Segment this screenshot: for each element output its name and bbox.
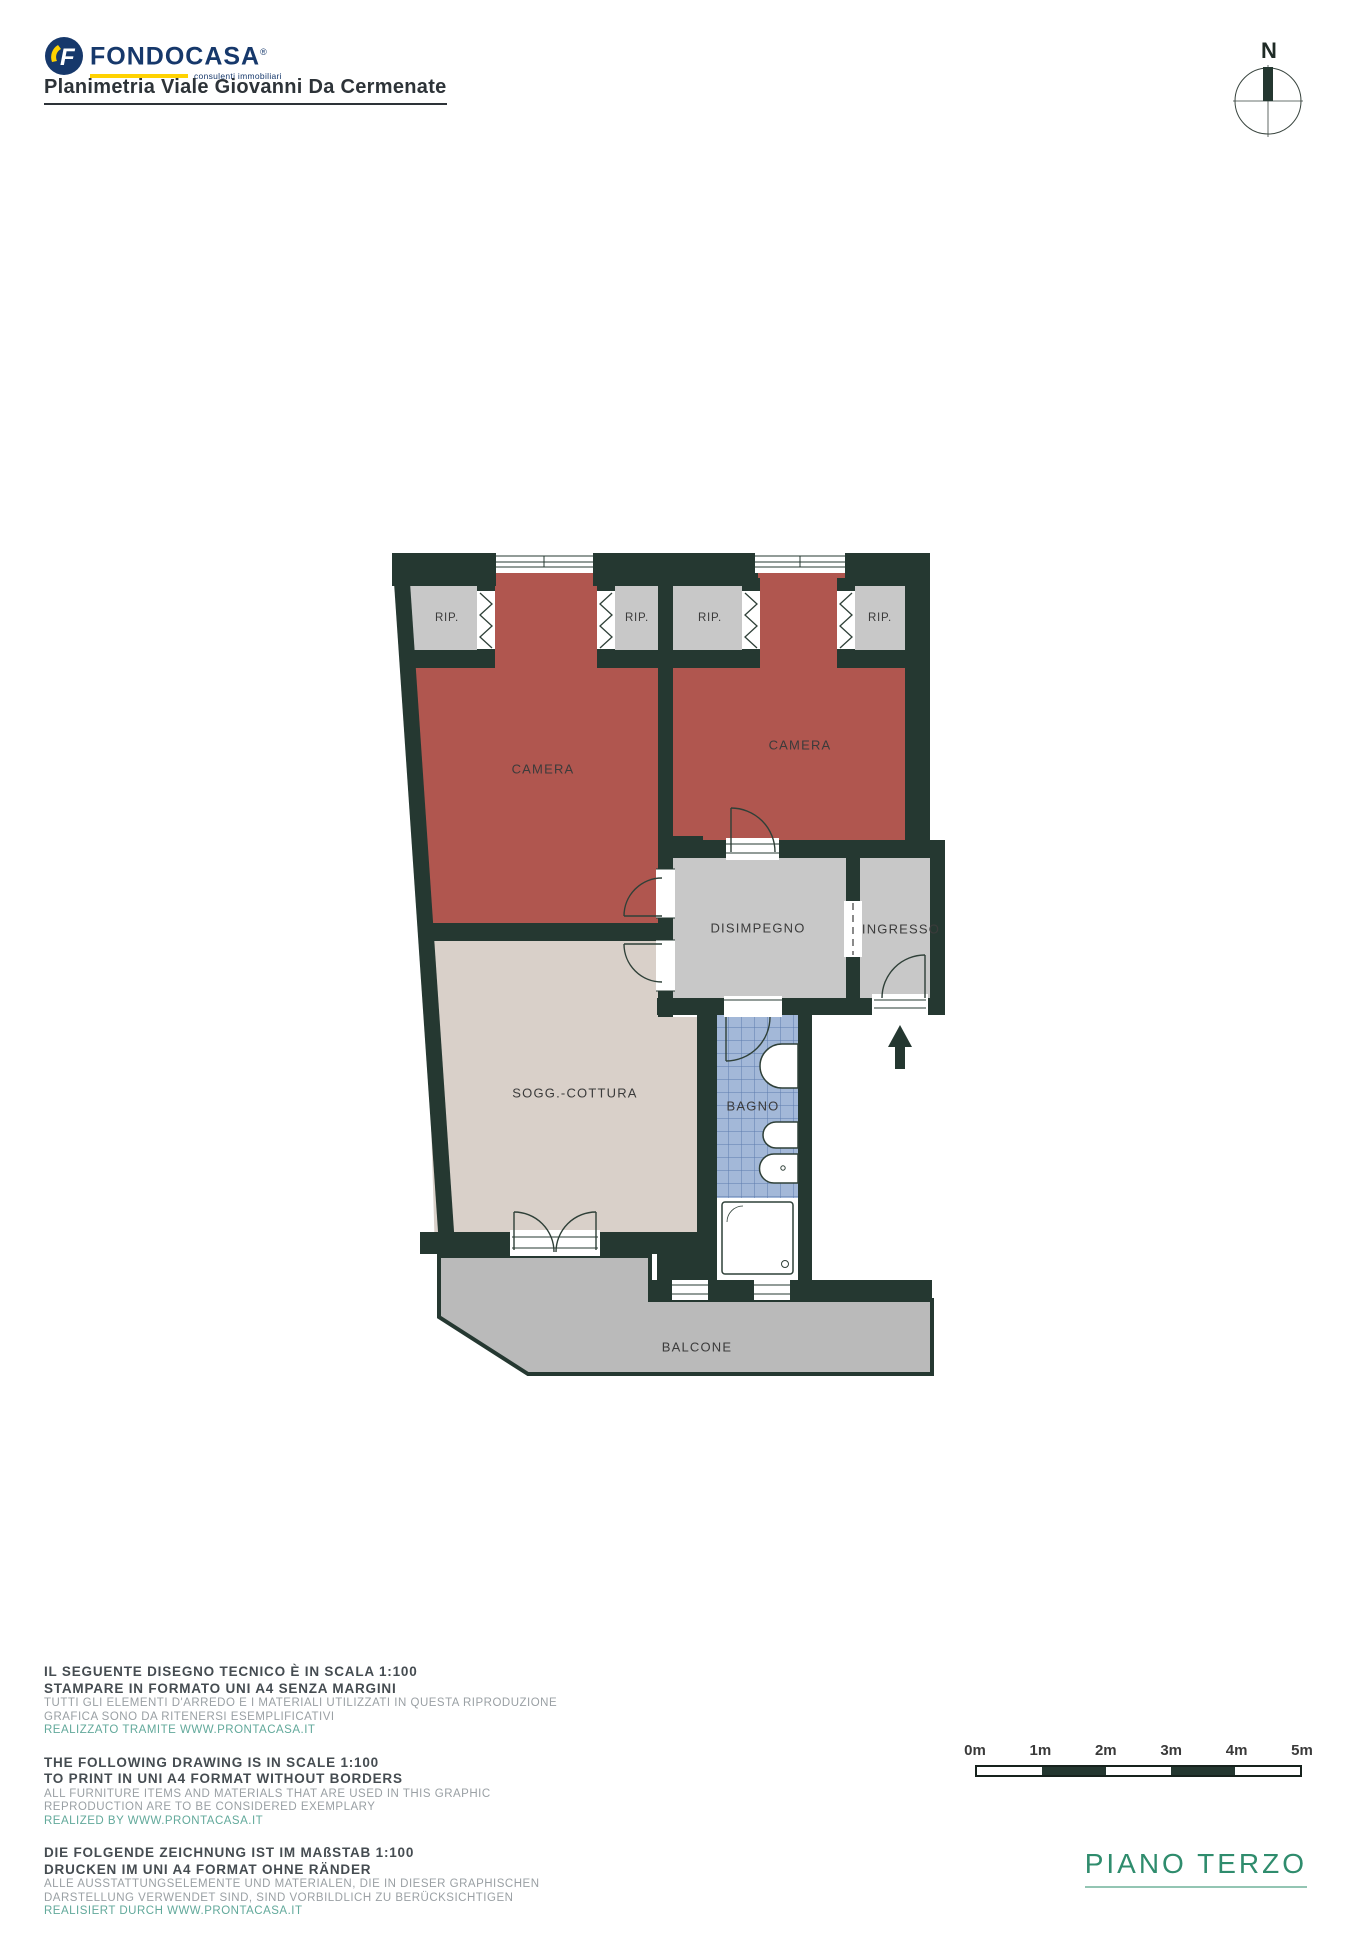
floor-label: PIANO TERZO (1085, 1848, 1307, 1888)
bagno-label: BAGNO (727, 1099, 780, 1114)
note-line: THE FOLLOWING DRAWING IS IN SCALE 1:100 (44, 1755, 684, 1772)
note-line: DRUCKEN IM UNI A4 FORMAT OHNE RÄNDER (44, 1862, 684, 1879)
scale-tick-label: 0m (964, 1742, 986, 1759)
scale-bar-segments (975, 1765, 1302, 1777)
note-line: REPRODUCTION ARE TO BE CONSIDERED EXEMPL… (44, 1801, 684, 1815)
ingresso-label: INGRESSO (862, 922, 940, 937)
scale-tick-label: 1m (1030, 1742, 1052, 1759)
note-link: REALIZED BY WWW.PRONTACASA.IT (44, 1815, 684, 1829)
rip3-label: RIP. (698, 612, 722, 624)
note-link: REALIZZATO TRAMITE WWW.PRONTACASA.IT (44, 1724, 684, 1738)
balcone-label: BALCONE (662, 1340, 733, 1355)
soggiorno-label: SOGG.-COTTURA (512, 1086, 637, 1101)
entrance-arrow-icon (888, 1025, 912, 1069)
toilet-icon (760, 1154, 799, 1183)
note-link: REALISIERT DURCH WWW.PRONTACASA.IT (44, 1905, 684, 1919)
notes-italian: IL SEGUENTE DISEGNO TECNICO È IN SCALA 1… (44, 1664, 684, 1738)
notes: IL SEGUENTE DISEGNO TECNICO È IN SCALA 1… (44, 1664, 684, 1936)
notes-german: DIE FOLGENDE ZEICHNUNG IST IM MAßSTAB 1:… (44, 1845, 684, 1919)
note-line: IL SEGUENTE DISEGNO TECNICO È IN SCALA 1… (44, 1664, 684, 1681)
rip1-label: RIP. (435, 612, 459, 624)
page: F FONDOCASA® consulenti immobiliari Plan… (0, 0, 1357, 1920)
note-line: ALLE AUSSTATTUNGSELEMENTE UND MATERIALEN… (44, 1878, 684, 1892)
scale-tick-label: 3m (1160, 1742, 1182, 1759)
rip4-label: RIP. (868, 612, 892, 624)
note-line: DIE FOLGENDE ZEICHNUNG IST IM MAßSTAB 1:… (44, 1845, 684, 1862)
scale-tick-label: 2m (1095, 1742, 1117, 1759)
scale-bar: 0m 1m 2m 3m 4m 5m (975, 1742, 1302, 1777)
note-line: STAMPARE IN FORMATO UNI A4 SENZA MARGINI (44, 1681, 684, 1698)
notes-english: THE FOLLOWING DRAWING IS IN SCALE 1:100 … (44, 1755, 684, 1829)
bidet-icon (763, 1122, 798, 1148)
camera2-label: CAMERA (769, 738, 832, 753)
rip2-label: RIP. (625, 612, 649, 624)
note-line: TO PRINT IN UNI A4 FORMAT WITHOUT BORDER… (44, 1771, 684, 1788)
disimpegno-label: DISIMPEGNO (710, 921, 805, 936)
note-line: GRAFICA SONO DA RITENERSI ESEMPLIFICATIV… (44, 1711, 684, 1725)
floorplan-drawing (0, 0, 1357, 1920)
note-line: ALL FURNITURE ITEMS AND MATERIALS THAT A… (44, 1788, 684, 1802)
note-line: TUTTI GLI ELEMENTI D'ARREDO E I MATERIAL… (44, 1697, 684, 1711)
scale-tick-label: 5m (1291, 1742, 1313, 1759)
scale-tick-label: 4m (1226, 1742, 1248, 1759)
note-line: DARSTELLUNG VERWENDET SIND, SIND VORBILD… (44, 1892, 684, 1906)
camera1-label: CAMERA (512, 762, 575, 777)
sink-icon (760, 1044, 798, 1088)
shower-box-icon (722, 1202, 793, 1274)
